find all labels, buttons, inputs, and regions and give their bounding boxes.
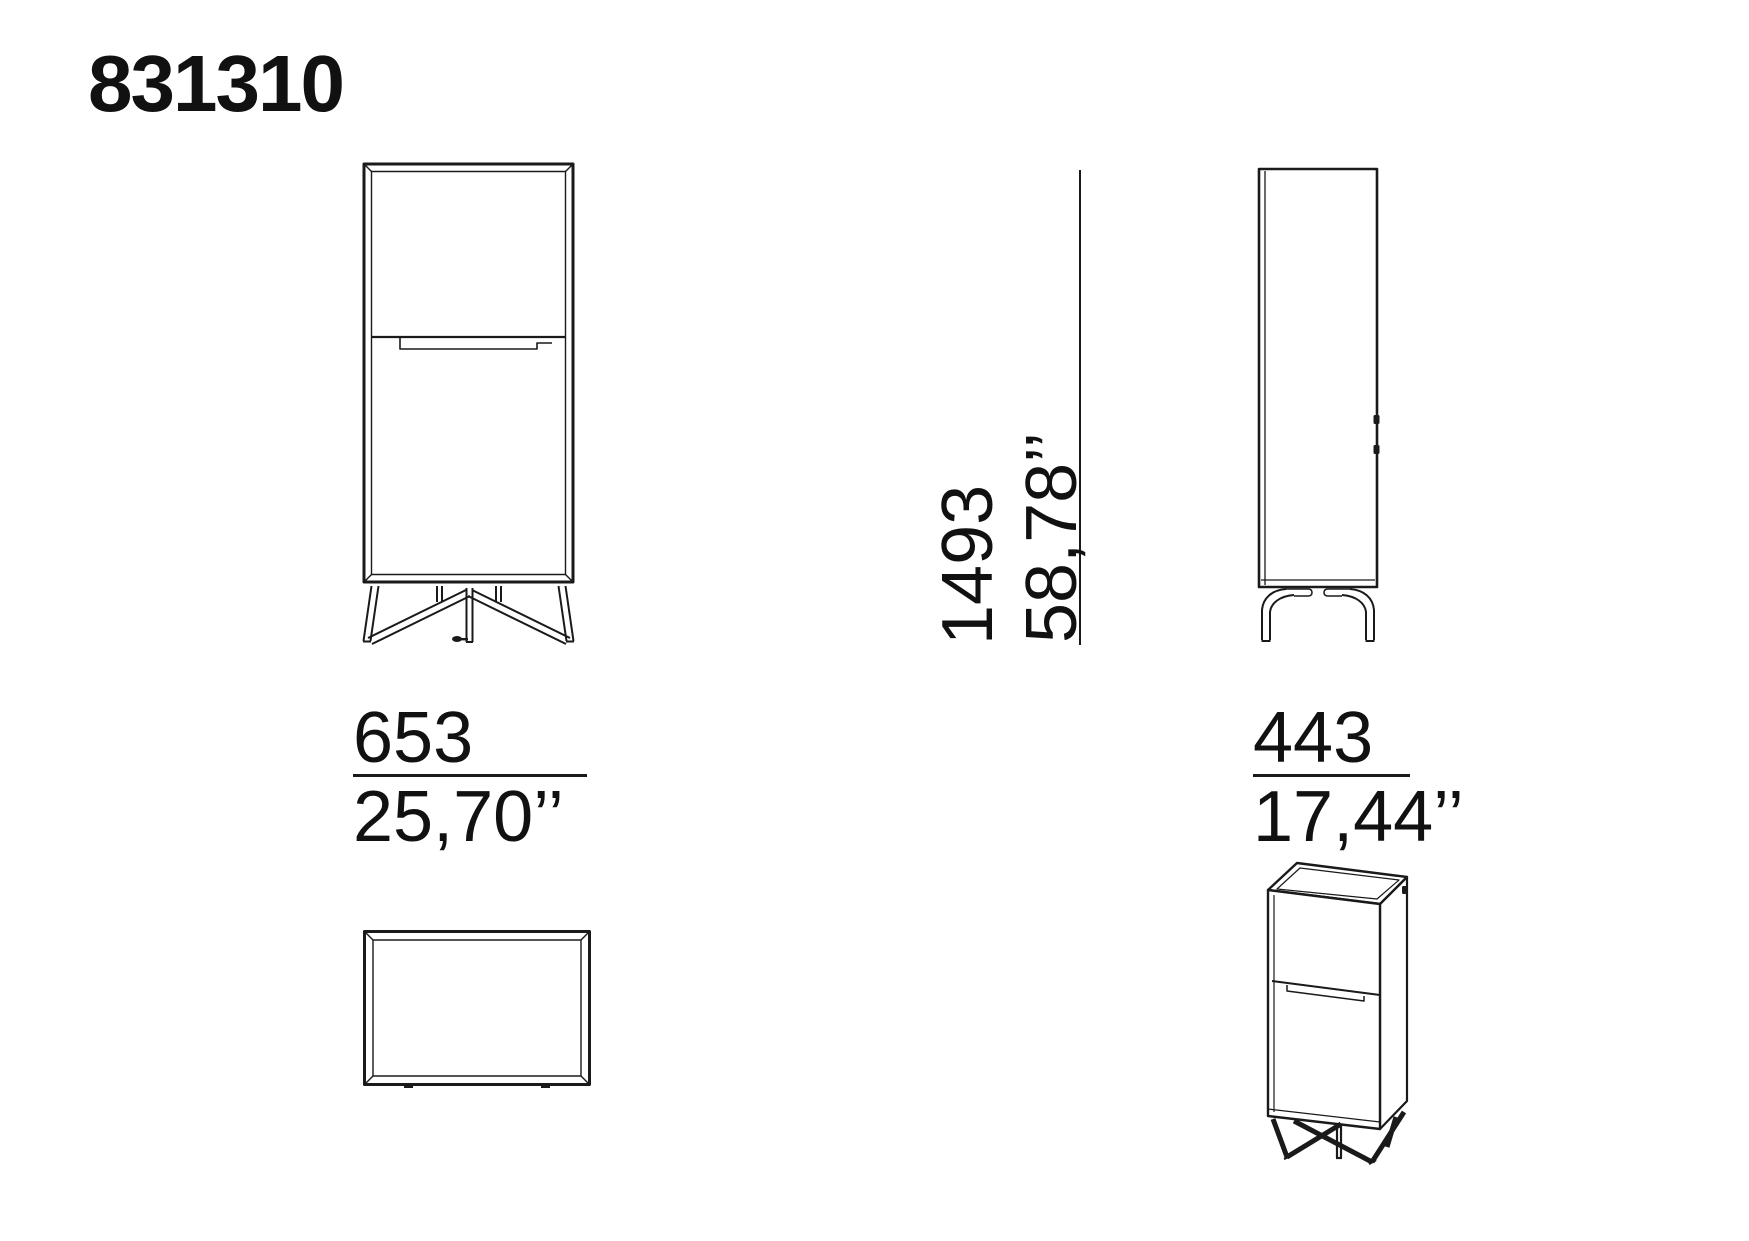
side-legs <box>1262 589 1375 641</box>
width-dimension: 653 25,70’’ <box>353 702 587 853</box>
perspective-right-face <box>1380 877 1407 1129</box>
width-dimension-mm: 653 <box>353 702 587 777</box>
product-code: 831310 <box>88 44 343 124</box>
height-dimension-inches: 58,78’’ <box>1016 432 1088 643</box>
depth-dimension: 443 17,44’’ <box>1253 702 1464 853</box>
perspective-drawing <box>1250 848 1425 1183</box>
front-elevation-drawing <box>330 135 600 665</box>
top-plan-drawing <box>350 915 610 1100</box>
front-inner-frame <box>372 172 566 575</box>
top-inner-frame <box>373 940 581 1076</box>
depth-dimension-inches: 17,44’’ <box>1253 781 1464 853</box>
depth-dimension-mm: 443 <box>1253 702 1410 777</box>
perspective-front-face <box>1268 890 1380 1129</box>
height-dimension-mm: 1493 <box>932 485 1004 645</box>
front-outer-frame <box>364 164 573 582</box>
front-corner-miters <box>364 164 573 582</box>
top-outer-frame <box>365 932 590 1085</box>
side-elevation-drawing <box>1245 135 1395 660</box>
width-dimension-inches: 25,70’’ <box>353 781 587 853</box>
front-handle-recess <box>400 338 552 349</box>
top-corner-miters <box>365 932 590 1085</box>
side-outer-frame <box>1259 169 1377 587</box>
perspective-hinge <box>1402 886 1407 894</box>
front-legs <box>363 586 574 644</box>
